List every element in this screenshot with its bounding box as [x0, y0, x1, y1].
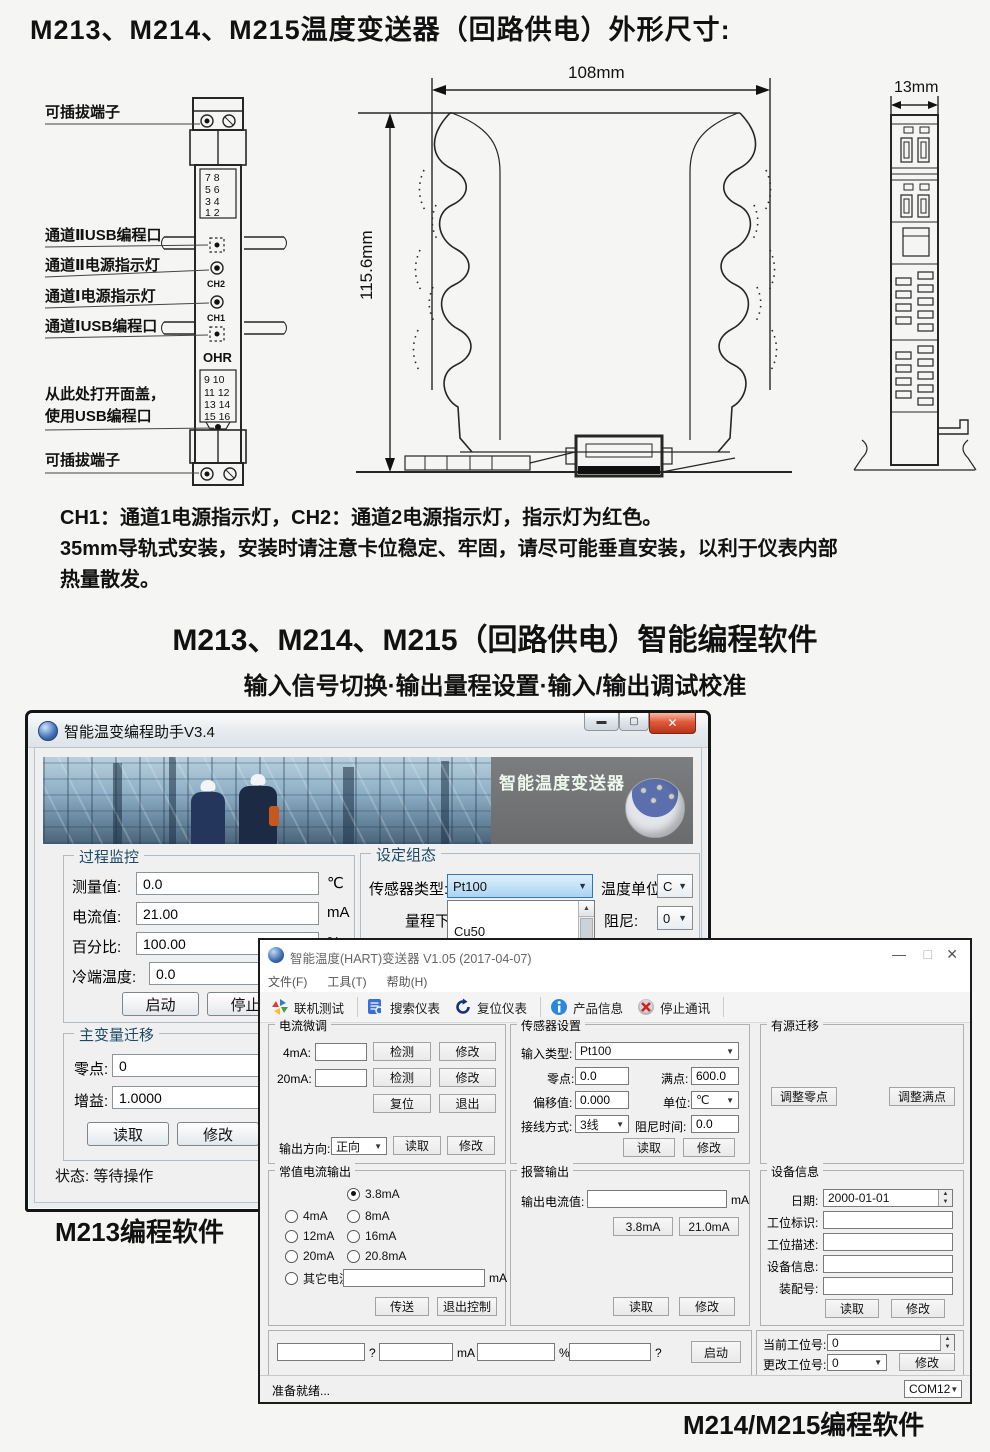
radio-16ma[interactable]: 16mA — [347, 1229, 396, 1243]
side-view: 13mm — [854, 79, 976, 470]
toolbar-separator — [357, 997, 358, 1017]
sync-arrows-icon — [271, 998, 289, 1016]
input-type-label: 输入类型: — [521, 1045, 572, 1062]
toolbar: 联机测试 搜索仪表 复位仪表 — [260, 992, 970, 1023]
modify-20ma-button[interactable]: 修改 — [439, 1068, 496, 1087]
sensor-type-combo[interactable]: Pt100▼ — [447, 874, 593, 898]
radio-icon — [285, 1210, 298, 1223]
reset-device-button[interactable]: 复位仪表 — [449, 995, 536, 1020]
output-direction-label: 输出方向: — [279, 1140, 330, 1157]
alarm-current-unit: mA — [731, 1193, 749, 1207]
dimension-drawing: 7 8 5 6 3 4 1 2 CH2 CH1 OHR 9 10 11 12 1… — [0, 0, 990, 500]
svg-text:CH2: CH2 — [207, 279, 225, 289]
stop-comm-button[interactable]: 停止通讯 — [632, 995, 719, 1020]
zero-input[interactable] — [575, 1067, 629, 1085]
svg-text:通道ⅠUSB编程口: 通道ⅠUSB编程口 — [45, 317, 157, 335]
front-view: 7 8 5 6 3 4 1 2 CH2 CH1 OHR 9 10 11 12 1… — [190, 98, 246, 485]
window-title: 智能温变编程助手V3.4 — [64, 721, 215, 742]
20ma-label: 20mA: — [277, 1072, 312, 1086]
group-legend: 有源迁移 — [767, 1017, 823, 1034]
panel-station-number: 当前工位号: 0 ▲▼ 更改工位号: 0▼ 修改 — [756, 1330, 964, 1376]
alarm-current-label: 输出电流值: — [521, 1193, 584, 1210]
modify-button[interactable]: 修改 — [683, 1138, 735, 1157]
percent-label: 百分比: — [72, 936, 121, 957]
close-button[interactable]: ✕ — [649, 713, 696, 734]
toolbar-separator — [723, 997, 724, 1017]
svg-text:13 14: 13 14 — [204, 399, 230, 411]
damping-value: 0 — [663, 911, 670, 926]
status-bar: 准备就绪... COM12▼ — [260, 1375, 970, 1402]
notes: CH1：通道1电源指示灯，CH2：通道2电源指示灯，指示灯为红色。 35mm导轨… — [60, 503, 838, 596]
read-button[interactable]: 读取 — [613, 1297, 669, 1316]
svg-text:15 16: 15 16 — [204, 411, 230, 423]
menu-file[interactable]: 文件(F) — [268, 973, 307, 990]
station-spinner[interactable]: ▲▼ — [940, 1335, 954, 1350]
change-station-combo[interactable]: 0▼ — [827, 1354, 887, 1371]
chevron-down-icon: ▼ — [726, 1096, 734, 1105]
group-legend: 设备信息 — [767, 1163, 823, 1180]
window-title: 智能温度(HART)变送器 V1.05 (2017-04-07) — [290, 948, 532, 967]
close-button[interactable]: ✕ — [946, 946, 958, 963]
group-legend: 传感器设置 — [517, 1017, 585, 1034]
status-value: 等待操作 — [93, 1168, 153, 1185]
status-label: 状态: — [55, 1168, 89, 1185]
alarm-low-button[interactable]: 3.8mA — [613, 1217, 673, 1236]
adjust-full-button[interactable]: 调整满点 — [889, 1087, 955, 1106]
temp-unit-combo[interactable]: C▼ — [657, 874, 693, 898]
radio-20ma[interactable]: 20mA — [285, 1249, 334, 1263]
chevron-down-icon: ▼ — [726, 1047, 734, 1056]
output-direction-combo[interactable]: 正向▼ — [331, 1137, 387, 1155]
radio-icon — [285, 1250, 298, 1263]
modify-button[interactable]: 修改 — [177, 1122, 259, 1146]
radio-icon — [347, 1250, 360, 1263]
group-legend: 主变量迁移 — [74, 1024, 159, 1045]
unit-label: 单位: — [663, 1094, 690, 1111]
group-sensor-settings: 传感器设置 输入类型: Pt100▼ 零点: 满点: 偏移值: 单位: ℃▼ 接… — [510, 1024, 750, 1164]
svg-text:使用USB编程口: 使用USB编程口 — [44, 407, 152, 425]
group-alarm-output: 报警输出 输出电流值: mA 3.8mA 21.0mA 读取 修改 — [510, 1170, 750, 1326]
radio-icon — [285, 1230, 298, 1243]
gain-label: 增益: — [74, 1090, 108, 1111]
radio-3.8ma[interactable]: 3.8mA — [347, 1187, 400, 1201]
read-button[interactable]: 读取 — [623, 1138, 675, 1157]
alarm-high-button[interactable]: 21.0mA — [679, 1217, 739, 1236]
zero-label: 零点: — [74, 1058, 108, 1079]
stop-icon — [637, 998, 655, 1016]
damping-time-label: 阻尼时间: — [635, 1118, 686, 1135]
software-section-subtitle: 输入信号切换·输出量程设置·输入/输出调试校准 — [0, 666, 990, 701]
modify-station-button[interactable]: 修改 — [899, 1353, 955, 1371]
wiring-value: 3线 — [580, 1116, 599, 1133]
group-constant-output: 常值电流输出 3.8mA 4mA 8mA 12mA 16mA 20mA 20.8… — [268, 1170, 506, 1326]
4ma-label: 4mA: — [283, 1046, 311, 1060]
app-icon — [268, 947, 284, 963]
search-device-button[interactable]: 搜索仪表 — [362, 995, 449, 1020]
assembly-input[interactable] — [823, 1277, 953, 1295]
window-m214-m215-software: 智能温度(HART)变送器 V1.05 (2017-04-07) — □ ✕ 文… — [258, 938, 972, 1404]
title-bar[interactable]: 智能温度(HART)变送器 V1.05 (2017-04-07) — □ ✕ — [260, 940, 970, 970]
device-info-input[interactable] — [823, 1255, 953, 1273]
software-section-title: M213、M214、M215（回路供电）智能编程软件 — [0, 615, 990, 659]
svg-text:1 2: 1 2 — [205, 207, 220, 219]
current-station-label: 当前工位号: — [763, 1336, 826, 1353]
wiring-combo[interactable]: 3线▼ — [575, 1115, 629, 1133]
damping-time-input[interactable] — [691, 1115, 739, 1133]
banner-photo — [43, 757, 491, 844]
current-label: 电流值: — [72, 906, 121, 927]
svg-text:通道Ⅰ电源指示灯: 通道Ⅰ电源指示灯 — [45, 287, 156, 305]
station-id-input[interactable] — [823, 1211, 953, 1229]
note-line-1: CH1：通道1电源指示灯，CH2：通道2电源指示灯，指示灯为红色。 — [60, 503, 838, 534]
online-test-button[interactable]: 联机测试 — [266, 995, 353, 1020]
status-line: 状态: 等待操作 — [55, 1165, 153, 1186]
start-button[interactable]: 启动 — [122, 992, 199, 1016]
chevron-down-icon: ▼ — [678, 913, 687, 923]
panel-debug-values: ? mA % ? 启动 — [268, 1330, 752, 1376]
unit-value: ℃ — [696, 1093, 709, 1107]
debug-input-2[interactable] — [379, 1343, 453, 1361]
dropdown-item-blank[interactable] — [448, 901, 594, 922]
radio-20.8ma[interactable]: 20.8mA — [347, 1249, 406, 1263]
svg-text:5 6: 5 6 — [205, 184, 220, 196]
station-id-label: 工位标识: — [767, 1214, 818, 1231]
com-port-combo[interactable]: COM12▼ — [904, 1380, 962, 1398]
damping-label: 阻尼: — [604, 910, 638, 931]
other-current-input[interactable] — [343, 1269, 485, 1287]
coldjunction-label: 冷端温度: — [72, 966, 136, 987]
maximize-button[interactable]: □ — [924, 946, 932, 962]
damping-combo[interactable]: 0▼ — [657, 906, 693, 930]
zero-label: 零点: — [547, 1070, 574, 1087]
group-legend: 过程监控 — [74, 846, 144, 867]
send-button[interactable]: 传送 — [375, 1297, 429, 1316]
svg-text:7 8: 7 8 — [205, 172, 220, 184]
reset-arrow-icon — [454, 998, 472, 1016]
assembly-label: 装配号: — [779, 1280, 818, 1297]
toolbar-separator — [540, 997, 541, 1017]
note-line-3: 热量散发。 — [60, 565, 838, 596]
separator-2: mA — [457, 1346, 475, 1360]
worker-figure — [191, 792, 225, 844]
banner-caption: 智能温度变送器 — [499, 769, 625, 794]
station-desc-input[interactable] — [823, 1233, 953, 1251]
radio-4ma[interactable]: 4mA — [285, 1209, 328, 1223]
top-view: 108mm 115.6mm — [356, 63, 792, 476]
title-bar[interactable]: 智能温变编程助手V3.4 ▬ ▢ ✕ — [28, 713, 708, 748]
caption-m214-m215: M214/M215编程软件 — [683, 1405, 924, 1442]
measure-label: 测量值: — [72, 876, 121, 897]
exit-button[interactable]: 退出 — [439, 1094, 496, 1113]
current-station-input[interactable]: 0 ▲▼ — [827, 1334, 955, 1351]
spin-down-icon[interactable]: ▼ — [939, 1198, 952, 1206]
detect-20ma-button[interactable]: 检测 — [373, 1068, 431, 1087]
start-button[interactable]: 启动 — [691, 1341, 741, 1363]
detect-4ma-button[interactable]: 检测 — [373, 1042, 431, 1061]
search-icon — [367, 998, 385, 1016]
spin-up-icon[interactable]: ▲ — [939, 1190, 952, 1198]
page: M213、M214、M215温度变送器（回路供电）外形尺寸: 7 8 5 6 3… — [0, 0, 990, 1452]
20ma-input[interactable] — [315, 1069, 367, 1087]
radio-icon — [347, 1210, 360, 1223]
output-direction-value: 正向 — [336, 1138, 360, 1155]
input-type-value: Pt100 — [580, 1044, 611, 1058]
full-input[interactable] — [691, 1067, 739, 1085]
group-device-info: 设备信息 日期: 2000-01-01 ▲▼ 工位标识: 工位描述: 设备信息:… — [760, 1170, 964, 1326]
debug-input-4[interactable] — [569, 1343, 651, 1361]
offset-input[interactable] — [575, 1091, 629, 1109]
chevron-down-icon: ▼ — [616, 1120, 624, 1129]
group-legend: 报警输出 — [517, 1163, 573, 1180]
unit-combo[interactable]: ℃▼ — [691, 1091, 739, 1109]
note-line-2: 35mm导轨式安装，安装时请注意卡位稳定、牢固，请尽可能垂直安装，以利于仪表内部 — [60, 534, 838, 565]
date-spinner[interactable]: ▲▼ — [938, 1190, 952, 1206]
radio-8ma[interactable]: 8mA — [347, 1209, 390, 1223]
dim-side-label: 13mm — [894, 79, 938, 96]
station-desc-label: 工位描述: — [767, 1236, 818, 1253]
measure-input[interactable] — [136, 872, 319, 895]
minimize-button[interactable]: — — [892, 946, 906, 962]
menu-tools[interactable]: 工具(T) — [327, 973, 366, 990]
modify-4ma-button[interactable]: 修改 — [439, 1042, 496, 1061]
info-icon — [550, 998, 568, 1016]
modify-direction-button[interactable]: 修改 — [447, 1136, 495, 1155]
current-unit: mA — [327, 904, 350, 921]
adjust-zero-button[interactable]: 调整零点 — [771, 1087, 837, 1106]
other-current-unit: mA — [489, 1271, 507, 1285]
temp-unit-value: C — [663, 879, 672, 894]
chevron-down-icon: ▼ — [374, 1142, 382, 1151]
chevron-down-icon: ▼ — [874, 1358, 882, 1367]
temp-unit-label: 温度单位 — [601, 878, 661, 899]
dim-width-label: 108mm — [568, 63, 625, 82]
group-legend: 电流微调 — [275, 1017, 331, 1034]
menu-bar: 文件(F) 工具(T) 帮助(H) — [260, 970, 970, 993]
read-button[interactable]: 读取 — [87, 1122, 169, 1146]
chevron-down-icon: ▼ — [950, 1385, 958, 1394]
brand-logo: OHR — [203, 350, 233, 365]
group-current-trim: 电流微调 4mA: 检测 修改 20mA: 检测 修改 复位 退出 输出方向: … — [268, 1024, 506, 1164]
exit-control-button[interactable]: 退出控制 — [437, 1297, 497, 1316]
sensor-type-label: 传感器类型: — [369, 878, 448, 899]
front-view-labels: 可插拔端子 通道ⅡUSB编程口 通道Ⅱ电源指示灯 通道Ⅰ电源指示灯 通道ⅠUSB… — [44, 103, 214, 473]
measure-unit: ℃ — [327, 874, 344, 892]
svg-text:从此处打开面盖，: 从此处打开面盖， — [45, 385, 165, 403]
device-info-label: 设备信息: — [767, 1258, 818, 1275]
full-label: 满点: — [661, 1070, 688, 1087]
reset-button[interactable]: 复位 — [373, 1094, 431, 1113]
radio-icon — [347, 1188, 360, 1201]
chevron-down-icon: ▼ — [678, 881, 687, 891]
svg-text:CH1: CH1 — [207, 313, 225, 323]
radio-other-current[interactable]: 其它电流 — [285, 1270, 351, 1287]
app-icon — [38, 721, 58, 741]
spin-up-icon[interactable]: ▲ — [941, 1335, 954, 1343]
radio-12ma[interactable]: 12mA — [285, 1229, 334, 1243]
debug-input-3[interactable] — [477, 1343, 555, 1361]
wiring-label: 接线方式: — [521, 1118, 572, 1135]
svg-text:通道Ⅱ电源指示灯: 通道Ⅱ电源指示灯 — [45, 256, 160, 274]
4ma-input[interactable] — [315, 1043, 367, 1061]
date-label: 日期: — [791, 1192, 818, 1209]
input-type-combo[interactable]: Pt100▼ — [575, 1042, 739, 1060]
read-button[interactable]: 读取 — [825, 1299, 879, 1318]
group-legend: 设定组态 — [371, 844, 441, 865]
svg-text:11 12: 11 12 — [204, 387, 230, 399]
group-legend: 常值电流输出 — [275, 1163, 355, 1180]
date-value: 2000-01-01 — [824, 1190, 938, 1206]
svg-text:通道ⅡUSB编程口: 通道ⅡUSB编程口 — [45, 226, 162, 244]
separator-1: ? — [369, 1346, 376, 1360]
alarm-current-input[interactable] — [587, 1190, 727, 1208]
dim-height-label: 115.6mm — [357, 230, 376, 300]
scroll-up-icon[interactable]: ▲ — [579, 901, 594, 917]
offset-label: 偏移值: — [533, 1094, 572, 1111]
current-input[interactable] — [136, 902, 319, 925]
com-port-value: COM12 — [909, 1382, 950, 1396]
debug-input-1[interactable] — [277, 1343, 365, 1361]
radio-icon — [347, 1230, 360, 1243]
current-station-value: 0 — [828, 1335, 940, 1350]
read-direction-button[interactable]: 读取 — [393, 1136, 441, 1155]
chevron-down-icon: ▼ — [578, 881, 587, 891]
sensor-type-value: Pt100 — [453, 879, 487, 894]
status-text: 准备就绪... — [272, 1382, 330, 1399]
product-info-button[interactable]: 产品信息 — [545, 995, 632, 1020]
transmitter-product-image — [625, 778, 685, 838]
minimize-button[interactable]: ▬ — [584, 713, 619, 731]
spin-down-icon[interactable]: ▼ — [941, 1343, 954, 1351]
svg-text:9 10: 9 10 — [204, 374, 225, 386]
change-station-label: 更改工位号: — [763, 1356, 826, 1373]
group-active-shift: 有源迁移 调整零点 调整满点 — [760, 1024, 964, 1164]
maximize-button[interactable]: ▢ — [619, 713, 649, 731]
svg-text:可插拔端子: 可插拔端子 — [45, 451, 120, 469]
separator-4: ? — [655, 1346, 662, 1360]
banner-panel: 智能温度变送器 — [491, 757, 693, 844]
date-input[interactable]: 2000-01-01 ▲▼ — [823, 1189, 953, 1207]
radio-icon — [285, 1272, 298, 1285]
caption-m213: M213编程软件 — [55, 1212, 224, 1249]
change-station-value: 0 — [832, 1356, 839, 1370]
menu-help[interactable]: 帮助(H) — [387, 973, 428, 990]
svg-text:可插拔端子: 可插拔端子 — [45, 103, 120, 121]
modify-button[interactable]: 修改 — [891, 1299, 945, 1318]
modify-button[interactable]: 修改 — [679, 1297, 735, 1316]
